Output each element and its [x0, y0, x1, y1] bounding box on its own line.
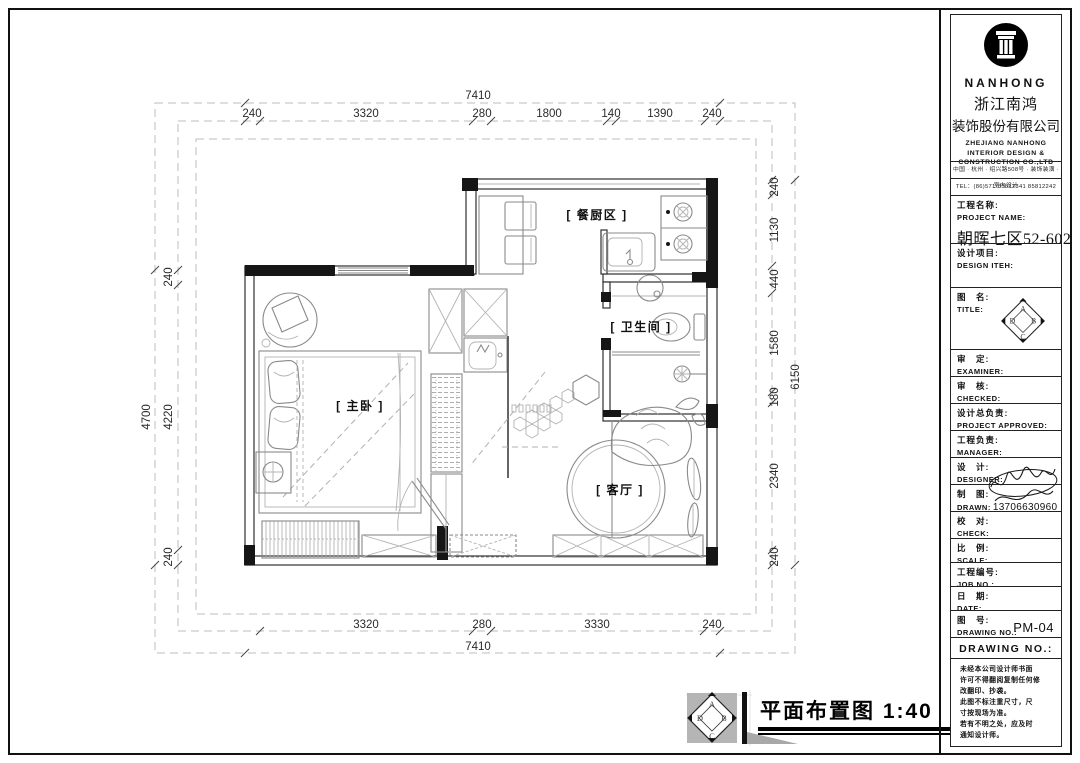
hex-floor-tiles: [470, 372, 599, 466]
dim-right-overall: 6150: [790, 364, 802, 390]
dim-top-overall: 7410: [465, 90, 491, 102]
logo-letter-b: B: [721, 713, 727, 723]
dim-bottom-overall: 7410: [465, 641, 491, 653]
field-job-no: 工程编号: JOB NO.:: [951, 562, 1061, 586]
dim: 1390: [647, 108, 673, 120]
field-checked: 审 核: CHECKED:: [951, 376, 1061, 403]
label-bathroom: [ 卫生间 ]: [610, 319, 671, 334]
label-bedroom: [ 主卧 ]: [336, 398, 384, 413]
field-scale: 比 例: SCALE:: [951, 538, 1061, 562]
title-block: NANHONG 浙江南鸿 装饰股份有限公司 ZHEJIANG NANHONG I…: [950, 14, 1062, 747]
company-name-cn-2: 装饰股份有限公司: [951, 115, 1061, 135]
title-diamond-logo: A B C D: [1000, 298, 1046, 344]
drawing-sheet: [ 餐厨区 ] [ 卫生间 ] [ 主卧 ] [ 客厅 ] 7410 240 3…: [0, 0, 1080, 763]
logo-letter-d: D: [697, 713, 703, 723]
drawing-number-value: PM-04: [1013, 620, 1054, 635]
company-phone: TEL：(86)571-85812341 85812242: [951, 178, 1061, 195]
dim: 240: [163, 267, 175, 286]
bed: [259, 351, 421, 513]
field-drawn: 制 图: DRAWN:13706630960: [951, 484, 1061, 511]
living-furniture: [262, 398, 705, 558]
titleblock-separator: [939, 8, 941, 755]
pillow: [267, 406, 301, 450]
dim: 4220: [163, 404, 175, 430]
field-project-approved: 设计总负责: PROJECT APPROVED:: [951, 403, 1061, 430]
dim: 240: [769, 177, 781, 196]
logo-letter-a: A: [709, 699, 716, 709]
field-title: 图 名: TITLE: A B C D: [951, 287, 1061, 348]
dim: 240: [769, 547, 781, 566]
field-project-name: 工程名称: PROJECT NAME: 朝晖七区52-602: [951, 195, 1061, 243]
title-underline-thin: [758, 733, 950, 735]
brand-name: NANHONG: [951, 76, 1061, 90]
field-date: 日 期: DATE:: [951, 586, 1061, 610]
logo-letter-c: C: [1020, 333, 1025, 342]
dim: 240: [702, 108, 721, 120]
label-kitchen: [ 餐厨区 ]: [566, 207, 627, 222]
low-wardrobe: [262, 521, 359, 558]
field-drawing-no: 图 号: DRAWING NO.: PM-04: [951, 610, 1061, 637]
dim-left-overall: 4700: [141, 404, 153, 430]
closet-strip: [429, 289, 551, 552]
dining-table: [479, 196, 523, 274]
dim: 240: [702, 619, 721, 631]
nanhong-column-logo: [983, 22, 1029, 68]
dim: 2340: [769, 463, 781, 489]
company-address: 中国 · 杭州 · 绍兴路508号 · 装饰装潢 · 室内设计: [951, 161, 1061, 178]
drawing-no-header: DRAWING NO.:: [951, 637, 1061, 658]
dim: 140: [601, 108, 620, 120]
plan-title-bar: A B C D 平面布置图 1:40: [686, 690, 952, 748]
logo-letter-d: D: [1010, 317, 1016, 326]
floor-plan-canvas: [ 餐厨区 ] [ 卫生间 ] [ 主卧 ] [ 客厅 ] 7410 240 3…: [0, 0, 940, 763]
logo-letter-c: C: [709, 731, 715, 741]
dim: 1580: [769, 330, 781, 356]
dim: 1800: [536, 108, 562, 120]
field-examiner: 审 定: EXAMINER:: [951, 349, 1061, 376]
dim: 280: [472, 108, 491, 120]
field-design-item: 设计项目: DESIGN ITEH:: [951, 243, 1061, 287]
nightstand: [256, 452, 291, 493]
pillow: [267, 360, 301, 404]
logo-letter-a: A: [1020, 304, 1026, 313]
company-header: NANHONG 浙江南鸿 装饰股份有限公司 ZHEJIANG NANHONG I…: [951, 15, 1061, 161]
dim: 3330: [584, 619, 610, 631]
logo-letter-b: B: [1031, 317, 1036, 326]
dim: 1130: [769, 218, 781, 243]
company-name-cn-1: 浙江南鸿: [951, 93, 1061, 114]
field-designer: 设 计: DESIGNER:: [951, 457, 1061, 484]
field-manager: 工程负责: MANAGER:: [951, 430, 1061, 457]
tv-cabinet: [553, 535, 703, 557]
title-underline-thick: [758, 727, 950, 731]
dim: 240: [163, 547, 175, 566]
dim: 3320: [353, 108, 379, 120]
field-check: 校 对: CHECK:: [951, 511, 1061, 538]
plan-title-text: 平面布置图 1:40: [760, 695, 933, 725]
dim: 440: [769, 269, 781, 288]
label-living: [ 客厅 ]: [596, 482, 644, 497]
dim: 280: [472, 619, 491, 631]
dim: 180: [769, 387, 781, 406]
copyright-notes: 未经本公司设计师书面 许可不得翻阅复制任何修 改翻印、抄袭。 此图不标注重尺寸，…: [951, 658, 1061, 746]
dim: 240: [242, 108, 261, 120]
dim: 3320: [353, 619, 379, 631]
